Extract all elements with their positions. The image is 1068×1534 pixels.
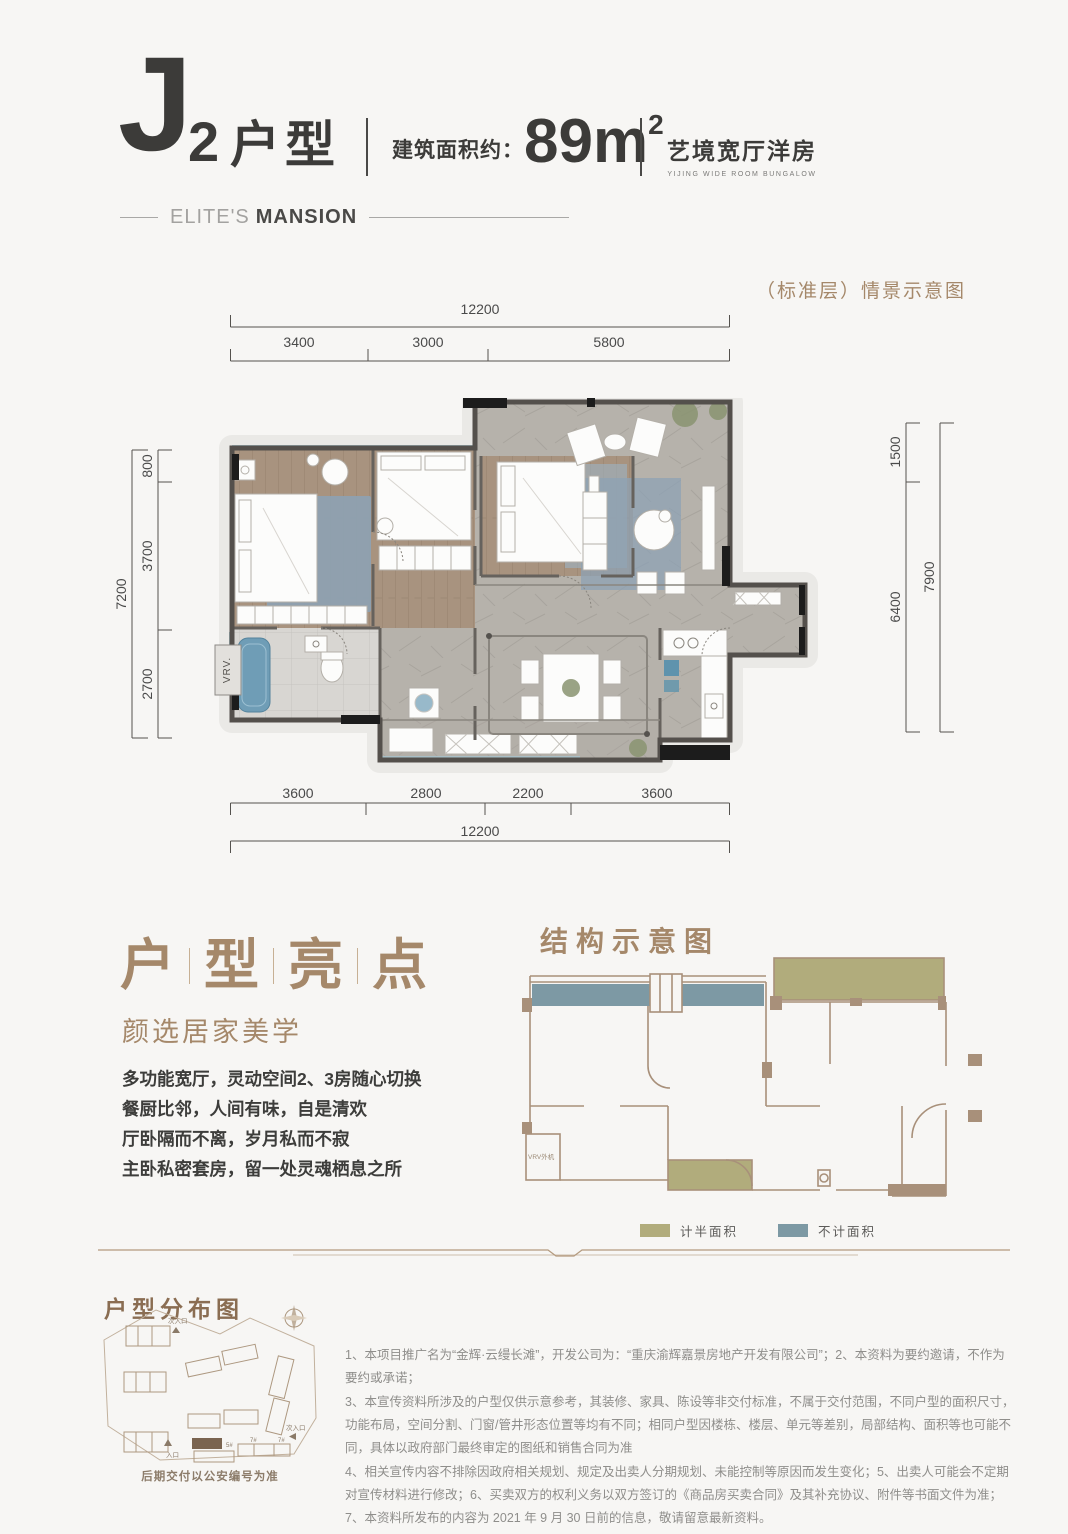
brochure-page: J 2 户型 建筑面积约： 89m2 艺境宽厅洋房 YIJING WIDE RO… [0, 0, 1068, 1534]
highlight-line: 厅卧隔而不离，岁月私而不寂 [122, 1124, 421, 1154]
svg-text:3600: 3600 [641, 786, 672, 801]
half-area-label: 计半面积 [680, 1221, 738, 1240]
ruler-top-total: 12200 [230, 300, 730, 330]
disclaimer-block: 1、本项目推广名为“金辉·云缦长滩”，开发公司为：“重庆渝辉嘉景房地产开发有限公… [345, 1344, 1017, 1531]
tv-cabinet [702, 486, 715, 570]
no-area-zone [532, 984, 764, 1006]
svg-text:3600: 3600 [282, 786, 313, 801]
unit-type-label: 户型 [230, 120, 340, 170]
highlight-line: 多功能宽厅，灵动空间2、3房随心切换 [122, 1064, 421, 1094]
tagline-cn: 艺境宽厅洋房 [662, 132, 822, 166]
svg-text:2200: 2200 [512, 786, 543, 801]
building-label: 7# [278, 1438, 285, 1444]
half-area-swatch [640, 1224, 670, 1237]
balcony-cabinet [445, 734, 511, 754]
svg-text:7200: 7200 [113, 578, 129, 609]
ruler-bottom-total: 12200 [230, 824, 730, 856]
brand-rule-right [369, 217, 569, 218]
unit-code-number: 2 [188, 114, 219, 170]
brand-row: ELITE'SMANSION [120, 206, 569, 229]
section-divider [98, 1244, 1010, 1262]
sofa [583, 492, 607, 570]
svg-text:800: 800 [139, 454, 155, 478]
svg-text:7900: 7900 [921, 561, 937, 592]
ruler-right: 1500 6400 7900 [888, 408, 960, 744]
floorplan-render: VRV. [213, 398, 863, 778]
brand-rule-left [120, 217, 158, 218]
plan-caption: （标准层）情景示意图 [700, 276, 966, 303]
ruler-left: 7200 800 3700 2700 [112, 438, 176, 750]
header-divider [640, 118, 642, 176]
svg-text:12200: 12200 [461, 824, 500, 839]
svg-text:3400: 3400 [283, 334, 314, 350]
dishwasher [664, 660, 679, 676]
building-label: 5# [226, 1443, 233, 1449]
secondary-entrance-label: 次入口 [168, 1316, 188, 1325]
area-value: 89m2 [524, 112, 664, 170]
highlight-line: 主卧私密套房，留一处灵魂栖息之所 [122, 1154, 421, 1184]
no-area-label: 不计面积 [818, 1221, 876, 1240]
disclaimer-paragraph: 4、相关宣传内容不排除因政府相关规划、规定及出卖人分期规划、未能控制等原因而发生… [345, 1461, 1017, 1530]
svg-text:3700: 3700 [139, 540, 155, 571]
compass-icon [281, 1305, 307, 1331]
structure-vrv-label: VRV外机 [528, 1152, 555, 1161]
distribution-caption: 后期交付以公安编号为准 [90, 1468, 330, 1484]
unit-code-letter: J [118, 38, 193, 172]
entry-console [735, 592, 781, 605]
ruler-bottom-segments: 3600 2800 2200 3600 [230, 786, 730, 818]
svg-text:2800: 2800 [410, 786, 441, 801]
ruler-top-segments: 3400 3000 5800 [230, 332, 730, 364]
svg-text:1500: 1500 [888, 436, 903, 467]
tagline: 艺境宽厅洋房 YIJING WIDE ROOM BUNGALOW [662, 132, 822, 178]
disclaimer-paragraph: 1、本项目推广名为“金辉·云缦长滩”，开发公司为：“重庆渝辉嘉景房地产开发有限公… [345, 1344, 1017, 1390]
no-area-swatch [778, 1224, 808, 1237]
svg-text:6400: 6400 [888, 591, 903, 622]
brand-name: ELITE'SMANSION [170, 206, 357, 229]
main-entrance-label: 入口 [166, 1451, 179, 1459]
svg-text:12200: 12200 [461, 301, 500, 317]
tagline-en: YIJING WIDE ROOM BUNGALOW [662, 171, 822, 178]
svg-text:5800: 5800 [593, 334, 624, 350]
secondary-entrance-label: 次入口 [286, 1423, 306, 1432]
highlights-subtitle: 颜选居家美学 [122, 1010, 302, 1049]
site-plan: 5# 7# 7# 次入口 次入口 入口 [98, 1296, 322, 1466]
highlights-title: 户 型 亮 点 [120, 938, 427, 993]
area-label: 建筑面积约： [392, 134, 524, 170]
wardrobe1 [237, 606, 367, 624]
legend-half-area: 计半面积 [640, 1221, 738, 1240]
legend-no-area: 不计面积 [778, 1221, 876, 1240]
structure-diagram: VRV外机 [520, 946, 990, 1212]
svg-text:3000: 3000 [412, 334, 443, 350]
header-divider [366, 118, 368, 176]
disclaimer-paragraph: 3、本宣传资料所涉及的户型仅供示意参考，其装修、家具、陈设等非交付标准，不属于交… [345, 1391, 1017, 1460]
vrv-label: VRV. [222, 657, 233, 683]
svg-text:2700: 2700 [139, 668, 155, 699]
highlights-lines: 多功能宽厅，灵动空间2、3房随心切换 餐厨比邻，人间有味，自是清欢 厅卧隔而不离… [122, 1064, 421, 1184]
wardrobe2 [379, 546, 471, 570]
area-block: 建筑面积约： 89m2 [392, 108, 664, 170]
kitchen-counter [663, 630, 727, 656]
highlight-line: 餐厨比邻，人间有味，自是清欢 [122, 1094, 421, 1124]
highlighted-building [192, 1438, 222, 1449]
building-label: 7# [250, 1438, 257, 1444]
half-area-zone-top [774, 958, 944, 1000]
